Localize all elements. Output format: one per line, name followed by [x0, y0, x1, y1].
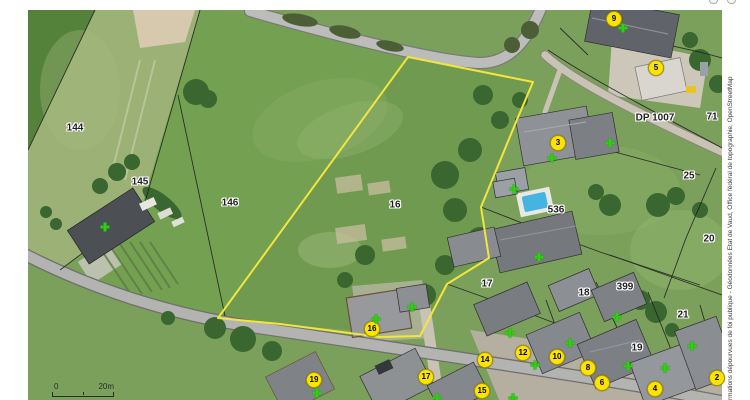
scale-start-label: 0 [54, 382, 58, 391]
address-point-cross-icon[interactable] [688, 342, 697, 351]
address-point-cross-icon[interactable] [101, 223, 110, 232]
house-number-marker[interactable]: 8 [580, 360, 596, 376]
house-number-marker[interactable]: 6 [594, 375, 610, 391]
house-number-marker[interactable]: 17 [418, 369, 434, 385]
map-viewer: 1441451461617536183992119252071DP 100795… [0, 0, 750, 400]
cropped-control-icon [709, 0, 718, 4]
address-point-cross-icon[interactable] [509, 394, 518, 400]
address-point-cross-icon[interactable] [661, 364, 670, 373]
address-point-cross-icon[interactable] [408, 303, 417, 312]
scale-end-label: 20m [98, 382, 114, 391]
scale-bar-rule [52, 392, 114, 397]
house-number-marker[interactable]: 15 [474, 383, 490, 399]
house-number-marker[interactable]: 14 [477, 352, 493, 368]
address-point-cross-icon[interactable] [535, 253, 544, 262]
address-point-cross-icon[interactable] [506, 329, 515, 338]
address-point-cross-icon[interactable] [606, 139, 615, 148]
address-point-cross-icon[interactable] [548, 154, 557, 163]
address-point-cross-icon[interactable] [313, 389, 322, 398]
attribution-text: rmations dépourvues de foi publique - Gé… [726, 0, 736, 400]
house-number-marker[interactable]: 12 [515, 345, 531, 361]
house-number-marker[interactable]: 19 [306, 372, 322, 388]
house-number-marker[interactable]: 4 [647, 381, 663, 397]
address-point-cross-icon[interactable] [624, 362, 633, 371]
address-point-cross-icon[interactable] [613, 313, 622, 322]
aerial-map-canvas[interactable] [28, 10, 722, 400]
house-number-marker[interactable]: 5 [648, 60, 664, 76]
address-point-cross-icon[interactable] [372, 315, 381, 324]
address-point-cross-icon[interactable] [510, 185, 519, 194]
house-number-marker[interactable]: 3 [550, 135, 566, 151]
address-point-cross-icon[interactable] [433, 394, 442, 400]
house-number-marker[interactable]: 2 [709, 370, 725, 386]
address-point-cross-icon[interactable] [531, 361, 540, 370]
scale-bar: 0 20m [52, 382, 114, 397]
aerial-photo-layer [28, 10, 722, 400]
house-number-marker[interactable]: 10 [549, 349, 565, 365]
address-point-cross-icon[interactable] [566, 339, 575, 348]
address-point-cross-icon[interactable] [619, 24, 628, 33]
